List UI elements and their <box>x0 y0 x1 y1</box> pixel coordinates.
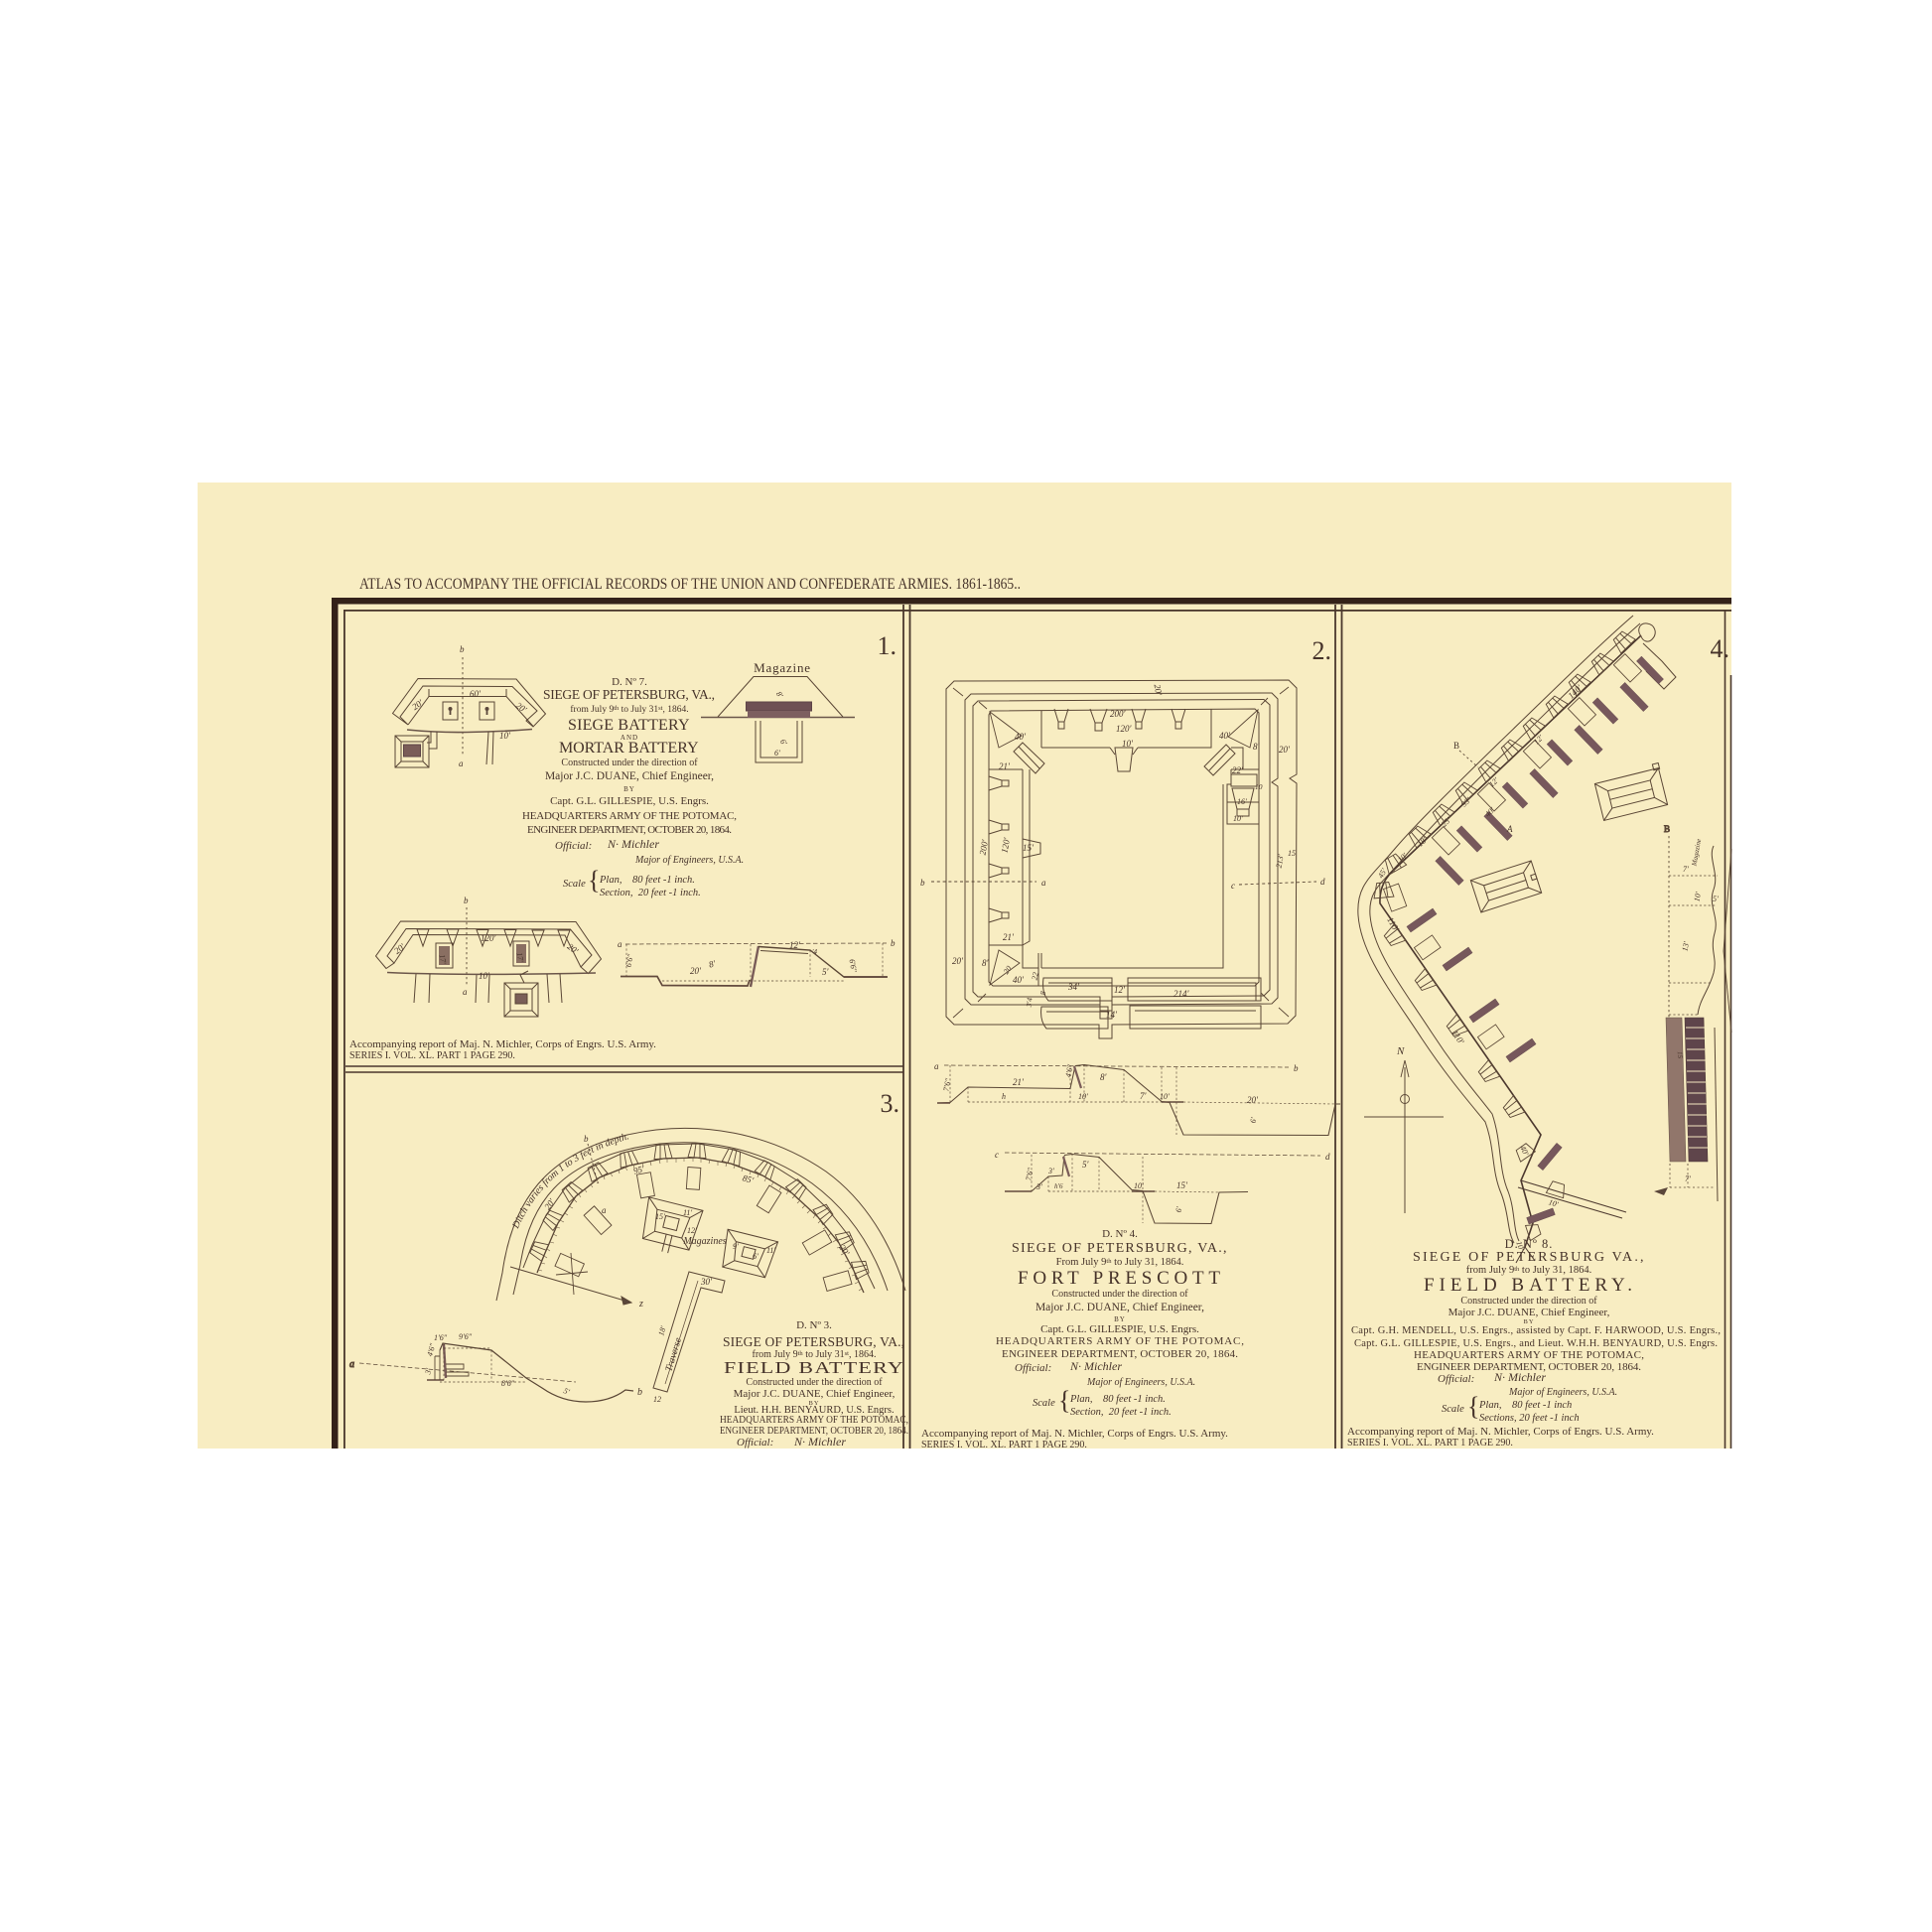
svg-text:a: a <box>463 987 468 997</box>
svg-text:MORTAR BATTERY: MORTAR BATTERY <box>559 740 700 757</box>
svg-text:60′: 60′ <box>470 689 482 699</box>
svg-text:6′: 6′ <box>774 749 780 758</box>
svg-text:13′: 13′ <box>1681 940 1692 951</box>
svg-text:{: { <box>588 866 600 895</box>
svg-text:21′: 21′ <box>999 761 1011 771</box>
svg-text:SIEGE OF PETERSBURG, VA.,: SIEGE OF PETERSBURG, VA., <box>723 1334 905 1349</box>
svg-text:1.: 1. <box>878 631 897 660</box>
svg-text:1′6″: 1′6″ <box>434 1333 448 1342</box>
svg-text:Official:: Official: <box>737 1437 773 1449</box>
svg-text:′4: ′4 <box>812 948 818 956</box>
svg-text:Section, 20 feet -1 inch.: Section, 20 feet -1 inch. <box>1070 1407 1172 1418</box>
svg-text:16′: 16′ <box>1237 797 1247 806</box>
svg-text:BY: BY <box>1523 1318 1534 1325</box>
svg-text:d: d <box>1325 1152 1330 1162</box>
svg-text:40′: 40′ <box>1219 731 1231 741</box>
svg-text:10′: 10′ <box>499 731 511 741</box>
svg-text:Major of Engineers, U.S.A.: Major of Engineers, U.S.A. <box>1508 1387 1617 1398</box>
svg-text:14′: 14′ <box>1106 1010 1118 1020</box>
svg-text:8′: 8′ <box>1253 742 1261 752</box>
svg-text:Capt. G.L. GILLESPIE, U.S. Eng: Capt. G.L. GILLESPIE, U.S. Engrs. <box>1040 1323 1199 1335</box>
svg-text:40′: 40′ <box>1013 975 1025 985</box>
svg-text:Plan, 80 feet -1 inch: Plan, 80 feet -1 inch <box>1478 1400 1572 1411</box>
svg-text:17′: 17′ <box>438 954 449 965</box>
svg-text:15′: 15′ <box>655 1212 665 1221</box>
svg-text:b: b <box>891 938 896 948</box>
svg-text:{: { <box>1467 1392 1479 1421</box>
svg-text:Capt. G.L. GILLESPIE, U.S. Eng: Capt. G.L. GILLESPIE, U.S. Engrs., and L… <box>1354 1338 1718 1349</box>
svg-text:22: 22 <box>1031 972 1040 981</box>
svg-text:c: c <box>995 1150 999 1160</box>
svg-text:8′: 8′ <box>1100 1072 1108 1082</box>
svg-text:20′: 20′ <box>1247 1095 1259 1105</box>
svg-text:b: b <box>920 878 925 888</box>
svg-text:Official:: Official: <box>1438 1373 1474 1385</box>
svg-text:N· Michler: N· Michler <box>1493 1370 1546 1384</box>
svg-text:N· Michler: N· Michler <box>1069 1359 1122 1373</box>
svg-text:10′: 10′ <box>1078 1092 1088 1101</box>
svg-text:Plan, 80 feet -1 inch.: Plan, 80 feet -1 inch. <box>1069 1394 1166 1405</box>
svg-text:HEADQUARTERS ARMY OF THE POTOM: HEADQUARTERS ARMY OF THE POTOMAC, <box>1414 1349 1644 1361</box>
svg-text:FIELD BATTERY.: FIELD BATTERY. <box>1424 1275 1634 1296</box>
svg-text:SIEGE OF PETERSBURG, VA.,: SIEGE OF PETERSBURG, VA., <box>1012 1241 1228 1256</box>
svg-text:12′: 12′ <box>789 940 801 950</box>
svg-text:SERIES I. VOL. XL. PART 1 PAG: SERIES I. VOL. XL. PART 1 PAGE 290. <box>1347 1438 1513 1449</box>
svg-text:21′: 21′ <box>1003 932 1015 942</box>
svg-text:3′: 3′ <box>1047 1167 1054 1175</box>
svg-text:4.: 4. <box>1711 634 1730 663</box>
svg-text:214′: 214′ <box>1173 989 1190 999</box>
svg-text:D. Nº 3.: D. Nº 3. <box>796 1319 832 1331</box>
svg-text:N: N <box>1396 1045 1405 1057</box>
svg-text:5′: 5′ <box>1082 1160 1090 1170</box>
svg-text:15: 15 <box>1288 849 1296 858</box>
svg-text:Official:: Official: <box>555 840 592 852</box>
svg-text:HEADQUARTERS ARMY OF THE POTOM: HEADQUARTERS ARMY OF THE POTOMAC, <box>996 1335 1244 1347</box>
svg-text:Plan, 80 feet -1 inch.: Plan, 80 feet -1 inch. <box>599 875 695 886</box>
svg-text:z: z <box>638 1299 643 1310</box>
svg-text:a: a <box>1041 878 1046 888</box>
svg-text:Scale: Scale <box>563 879 586 890</box>
svg-text:3.: 3. <box>881 1089 900 1118</box>
svg-text:{: { <box>1058 1386 1070 1415</box>
svg-text:a: a <box>459 759 464 768</box>
svg-text:10′: 10′ <box>1233 814 1243 823</box>
svg-text:10′: 10′ <box>1693 891 1704 901</box>
svg-text:20′: 20′ <box>952 956 964 966</box>
svg-text:40′: 40′ <box>1015 732 1027 742</box>
svg-text:10′: 10′ <box>1134 1181 1144 1190</box>
svg-text:15′: 15′ <box>1023 843 1035 853</box>
svg-text:B: B <box>1453 741 1459 751</box>
svg-text:21′: 21′ <box>1013 1077 1025 1087</box>
svg-text:b: b <box>637 1387 642 1398</box>
svg-text:12′: 12′ <box>1114 985 1126 995</box>
svg-text:15′: 15′ <box>1176 1180 1188 1190</box>
svg-text:Constructed under the directio: Constructed under the direction of <box>1051 1289 1188 1300</box>
svg-text:Major J.C. DUANE, Chief Engine: Major J.C. DUANE, Chief Engineer, <box>1035 1302 1204 1313</box>
svg-text:HEADQUARTERS ARMY OF THE POTOM: HEADQUARTERS ARMY OF THE POTOMAC, <box>720 1415 908 1426</box>
svg-text:SIEGE OF PETERSBURG, VA.,: SIEGE OF PETERSBURG, VA., <box>543 687 716 702</box>
svg-text:N· Michler: N· Michler <box>607 837 659 851</box>
svg-text:9′6″: 9′6″ <box>459 1332 473 1341</box>
svg-text:12: 12 <box>653 1395 661 1404</box>
svg-text:Magazine: Magazine <box>754 660 811 675</box>
svg-text:15: 15 <box>1676 1051 1685 1059</box>
svg-text:SERIES I. VOL. XL. PART 1 PAG: SERIES I. VOL. XL. PART 1 PAGE 290. <box>921 1440 1087 1450</box>
svg-text:Accompanying report of Maj. N.: Accompanying report of Maj. N. Michler, … <box>921 1428 1228 1440</box>
svg-text:Accompanying report of Maj. N.: Accompanying report of Maj. N. Michler, … <box>1347 1426 1654 1438</box>
svg-text:Major of Engineers, U.S.A.: Major of Engineers, U.S.A. <box>1086 1377 1195 1388</box>
svg-text:34′: 34′ <box>1067 982 1080 992</box>
svg-text:D. Nº 4.: D. Nº 4. <box>1102 1228 1138 1240</box>
svg-text:120′: 120′ <box>1116 724 1133 734</box>
svg-text:FIELD BATTERY: FIELD BATTERY <box>724 1358 904 1377</box>
svg-text:3′4: 3′4 <box>1025 997 1035 1008</box>
svg-text:9′: 9′ <box>733 1242 739 1251</box>
svg-text:ATLAS TO ACCOMPANY THE OFF: ATLAS TO ACCOMPANY THE OFFICIAL RECORDS … <box>359 576 1021 593</box>
svg-text:10′: 10′ <box>1160 1092 1170 1101</box>
svg-text:Capt. G.H. MENDELL, U.S. Engrs: Capt. G.H. MENDELL, U.S. Engrs., assiste… <box>1351 1325 1721 1336</box>
svg-text:Sections, 20 feet -1 inch: Sections, 20 feet -1 inch <box>1479 1413 1580 1424</box>
svg-text:ENGINEER DEPARTMENT, OCTOBER 2: ENGINEER DEPARTMENT, OCTOBER 20, 1864. <box>527 824 732 836</box>
svg-text:7′: 7′ <box>1685 1174 1691 1183</box>
svg-text:20′: 20′ <box>1279 745 1291 755</box>
svg-text:A: A <box>1506 824 1513 834</box>
svg-text:200′: 200′ <box>1110 709 1127 719</box>
svg-text:SERIES I. VOL. XL. PART 1 PAG: SERIES I. VOL. XL. PART 1 PAGE 290. <box>349 1050 515 1061</box>
svg-text:b: b <box>1294 1063 1299 1073</box>
svg-text:Major J.C. DUANE, Chief Engine: Major J.C. DUANE, Chief Engineer, <box>545 770 714 782</box>
svg-text:Constructed under the directi: Constructed under the direction of <box>746 1377 883 1388</box>
svg-text:7′: 7′ <box>1683 865 1689 874</box>
svg-text:10′: 10′ <box>1122 739 1134 749</box>
svg-text:a: a <box>602 1205 607 1215</box>
svg-text:8′: 8′ <box>982 958 990 968</box>
svg-text:Major J.C. DUANE, Chief Engin: Major J.C. DUANE, Chief Engineer, <box>734 1388 896 1400</box>
svg-text:Scale: Scale <box>1442 1404 1464 1415</box>
svg-text:b: b <box>460 644 465 654</box>
svg-text:b: b <box>584 1134 589 1144</box>
svg-text:2.: 2. <box>1312 636 1332 665</box>
svg-text:Major of Engineers, U.S.A.: Major of Engineers, U.S.A. <box>634 855 744 866</box>
svg-text:10: 10 <box>1255 782 1263 791</box>
svg-text:Official:: Official: <box>1015 1362 1051 1374</box>
svg-text:b: b <box>464 896 469 905</box>
svg-text:20′: 20′ <box>690 966 702 976</box>
svg-text:10′: 10′ <box>479 971 490 981</box>
svg-text:d: d <box>1320 877 1325 887</box>
svg-text:8′6″: 8′6″ <box>501 1379 515 1388</box>
svg-text:7′: 7′ <box>1140 1091 1148 1101</box>
svg-text:Capt. G.L. GILLESPIE, U.S. Eng: Capt. G.L. GILLESPIE, U.S. Engrs. <box>550 795 709 807</box>
svg-text:HEADQUARTERS ARMY OF THE POTOM: HEADQUARTERS ARMY OF THE POTOMAC, <box>522 810 737 822</box>
svg-text:11′: 11′ <box>683 1208 692 1217</box>
svg-text:Section, 20 feet -1 inch.: Section, 20 feet -1 inch. <box>600 888 701 898</box>
svg-text:BY: BY <box>623 785 635 793</box>
svg-text:c: c <box>1231 881 1235 891</box>
svg-text:Scale: Scale <box>1033 1398 1055 1409</box>
svg-text:FORT PRESCOTT: FORT PRESCOTT <box>1018 1268 1222 1289</box>
svg-text:11′: 11′ <box>766 1246 775 1255</box>
svg-text:Constructed under the directio: Constructed under the direction of <box>561 758 698 768</box>
svg-text:SIEGE BATTERY: SIEGE BATTERY <box>568 717 691 734</box>
svg-text:5′: 5′ <box>822 967 830 977</box>
svg-text:From July 9th to July 31, 1864: From July 9th to July 31, 1864. <box>1056 1257 1184 1268</box>
svg-text:Magazines: Magazines <box>682 1236 726 1247</box>
svg-text:5′: 5′ <box>1713 895 1719 903</box>
svg-text:a: a <box>934 1061 939 1071</box>
svg-text:3′: 3′ <box>1035 1182 1042 1191</box>
svg-text:from July 9th to July 31st, 18: from July 9th to July 31st, 1864. <box>570 704 688 715</box>
svg-text:12′: 12′ <box>687 1226 697 1235</box>
svg-text:Major J.C. DUANE, Chief Engine: Major J.C. DUANE, Chief Engineer, <box>1449 1307 1610 1318</box>
svg-text:Accompanying report of Maj. N.: Accompanying report of Maj. N. Michler, … <box>349 1038 656 1050</box>
svg-text:a: a <box>349 1359 354 1370</box>
svg-text:30′: 30′ <box>700 1277 713 1287</box>
svg-text:120′: 120′ <box>481 933 497 943</box>
svg-text:Constructed under the directio: Constructed under the direction of <box>1460 1296 1597 1307</box>
svg-text:a: a <box>618 939 622 949</box>
svg-text:17′: 17′ <box>515 952 526 963</box>
svg-text:B: B <box>1664 824 1670 834</box>
svg-text:6′: 6′ <box>753 1252 759 1261</box>
svg-text:h′6: h′6 <box>1054 1182 1063 1190</box>
svg-text:h: h <box>1002 1092 1006 1101</box>
svg-text:BY: BY <box>1114 1315 1126 1323</box>
svg-text:22′: 22′ <box>1232 765 1244 775</box>
svg-text:N· Michler: N· Michler <box>793 1435 846 1449</box>
